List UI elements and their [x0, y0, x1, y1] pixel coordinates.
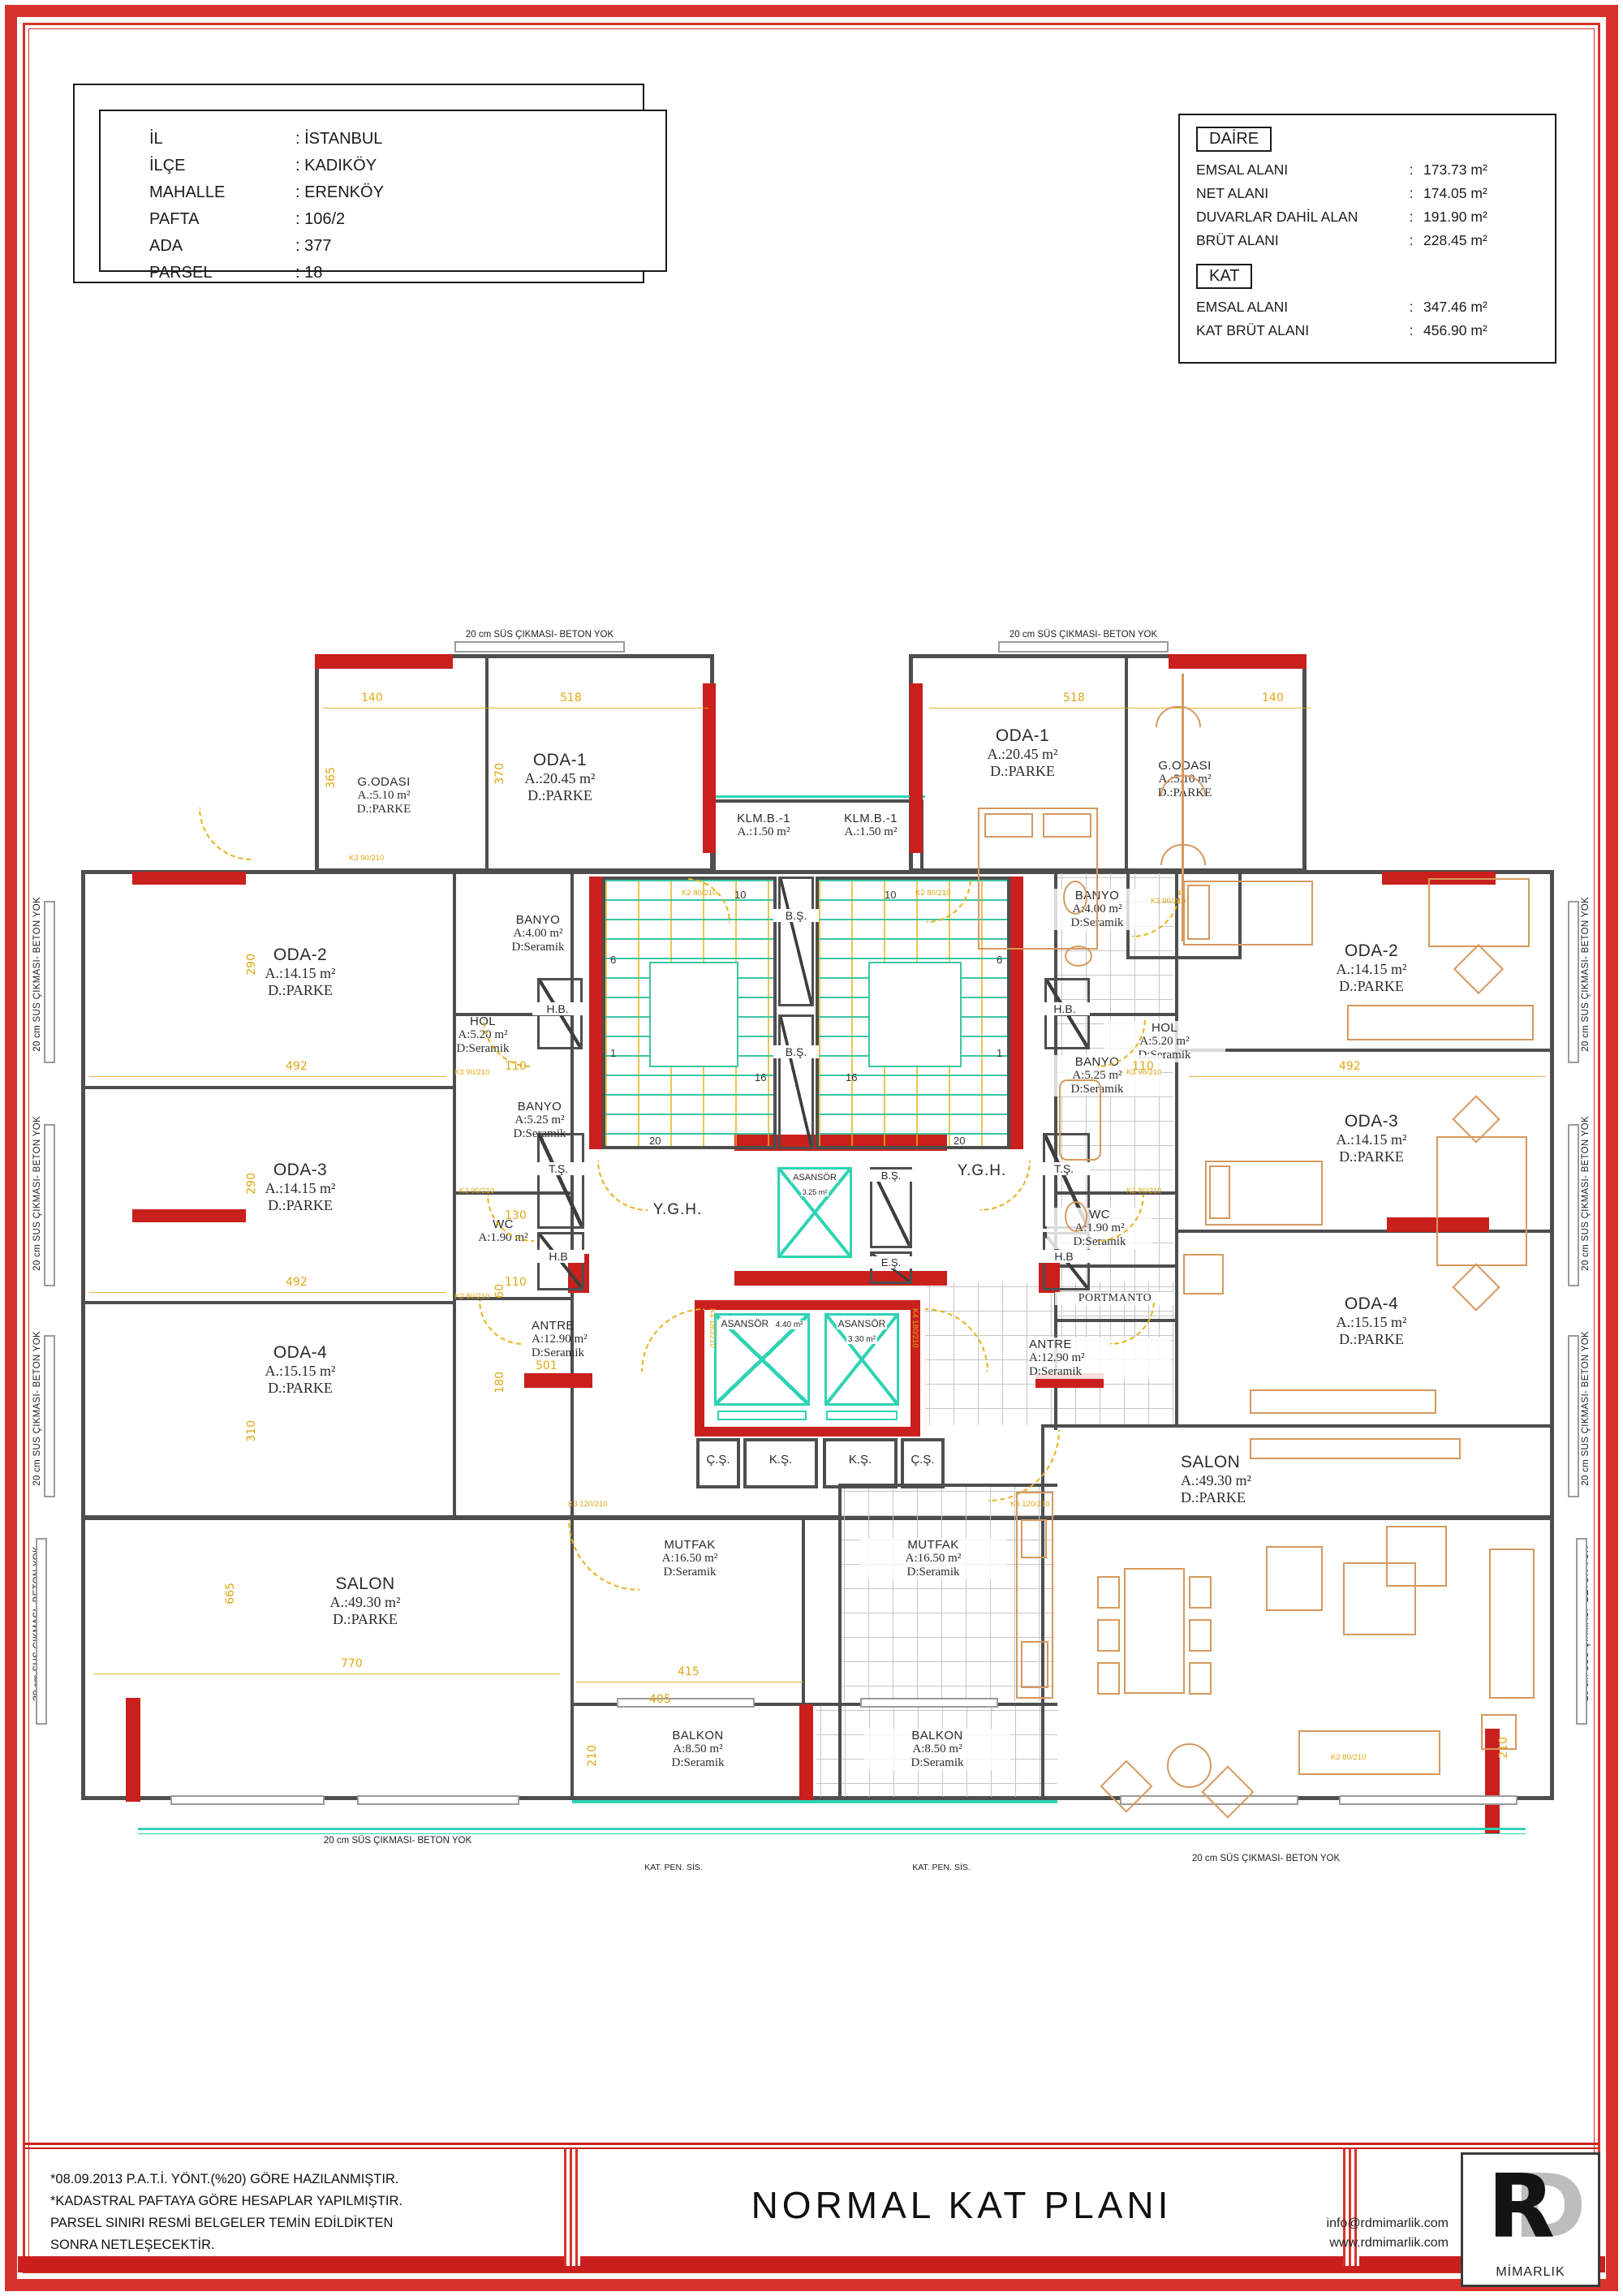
room-label-balkon-right: BALKON A:8.50 m² D:Seramik — [864, 1729, 1010, 1770]
room-name: KLM.B.-1 — [712, 812, 815, 825]
edge-note-top-left: 20 cm SÜS ÇIKMASI- BETON YOK — [450, 630, 629, 640]
wall — [838, 1485, 842, 1800]
room-floor: D:Seramik — [625, 1756, 771, 1770]
room-floor: D:Seramik — [864, 1756, 1010, 1770]
sideboard — [1250, 1438, 1461, 1459]
toilet — [1065, 1201, 1087, 1232]
room-floor: D:Seramik — [1029, 1365, 1171, 1379]
room-label-oda4-right: ODA-4 A.:15.15 m² D.:PARKE — [1258, 1294, 1485, 1348]
window — [998, 641, 1169, 653]
room-area: A.:14.15 m² — [187, 1180, 414, 1197]
company-logo: D R MİMARLIK — [1461, 2152, 1600, 2287]
door-tag: K2 80/210 — [1126, 1187, 1161, 1195]
window — [1568, 1335, 1579, 1497]
window — [44, 1335, 55, 1497]
room-name: ANTRE — [1029, 1338, 1171, 1351]
room-label-klmb-left: KLM.B.-1 A.:1.50 m² — [712, 812, 815, 839]
wall — [1126, 956, 1242, 959]
ts-shaft — [537, 1133, 584, 1229]
elevator-area: 3.25 m² — [801, 1188, 829, 1196]
room-area: A.:20.45 m² — [933, 746, 1112, 763]
room-area: A.:5.10 m² — [323, 789, 445, 803]
room-label-balkon-left: BALKON A:8.50 m² D:Seramik — [625, 1729, 771, 1770]
window — [1568, 1124, 1579, 1286]
room-name: BANYO — [477, 913, 599, 927]
elevator-label: ASANSÖR 4.40 m² — [714, 1316, 810, 1331]
red-wall — [734, 1271, 947, 1286]
coffee-table — [1386, 1526, 1447, 1587]
room-label-mutfak-right: MUTFAK A:16.50 m² D:Seramik — [860, 1538, 1006, 1579]
room-name: ODA-3 — [187, 1161, 414, 1180]
edge-note-bottom-left: 20 cm SÜS ÇIKMASI- BETON YOK — [268, 1836, 527, 1846]
logo-letter-r: R — [1487, 2156, 1555, 2258]
dimension-line — [576, 1682, 803, 1682]
stove — [1021, 1641, 1048, 1688]
dimension: 180 — [493, 1372, 506, 1394]
room-area: A.:49.30 m² — [1181, 1472, 1384, 1489]
edge-note-top-right: 20 cm SÜS ÇIKMASI- BETON YOK — [994, 630, 1173, 640]
room-name: ODA-2 — [187, 946, 414, 965]
dimension: 518 — [560, 691, 582, 704]
room-label-oda2-right: ODA-2 A.:14.15 m² D.:PARKE — [1258, 941, 1485, 995]
window — [1339, 1795, 1518, 1805]
elevator-name: ASANSÖR — [791, 1173, 838, 1182]
kitchen-sink — [1021, 1519, 1047, 1558]
room-name: MUTFAK — [860, 1538, 1006, 1552]
door-tag: K3 120/210 — [568, 1500, 608, 1509]
stair-number: 6 — [610, 954, 616, 966]
elevator-name: ASANSÖR — [719, 1318, 770, 1329]
dimension: 310 — [245, 1420, 258, 1442]
cs-label: Ç.Ş. — [901, 1453, 945, 1467]
ks-label: K.Ş. — [743, 1453, 818, 1467]
room-area: A.:14.15 m² — [187, 965, 414, 982]
room-name: ODA-1 — [933, 726, 1112, 746]
door-arc — [199, 808, 252, 860]
ks-label: K.Ş. — [823, 1453, 898, 1467]
stair-number: 16 — [846, 1071, 857, 1083]
wall — [1175, 1049, 1554, 1052]
room-floor: D.:PARKE — [933, 763, 1112, 780]
chair — [1097, 1662, 1120, 1695]
dimension: 290 — [245, 1173, 258, 1195]
window — [454, 641, 625, 653]
klmb-window-line — [711, 795, 925, 798]
room-label-salon-right: SALON A.:49.30 m² D.:PARKE — [1181, 1453, 1384, 1506]
chair — [1097, 1576, 1120, 1609]
room-name: ODA-4 — [1258, 1294, 1485, 1314]
dimension: 210 — [586, 1745, 599, 1767]
elevator-name: ASANSÖR — [837, 1318, 888, 1329]
window — [617, 1698, 755, 1708]
red-wall — [524, 1373, 592, 1388]
side-table — [1481, 1714, 1517, 1750]
toilet — [1063, 881, 1087, 915]
room-name: BALKON — [864, 1729, 1010, 1742]
window — [44, 1124, 55, 1286]
room-floor: D.:PARKE — [243, 1611, 487, 1628]
window — [44, 901, 55, 1063]
room-area: A.:1.50 m² — [712, 825, 815, 839]
window — [357, 1795, 519, 1805]
elevator-sill — [717, 1411, 807, 1420]
room-area: A:16.50 m² — [860, 1552, 1006, 1566]
bs-label: B.Ş. — [773, 1045, 819, 1058]
room-area: A.:1.50 m² — [818, 825, 923, 839]
room-label-klmb-right: KLM.B.-1 A.:1.50 m² — [818, 812, 923, 839]
dimension-line — [89, 1292, 446, 1293]
room-name: G.ODASI — [323, 775, 445, 789]
stair-number: 6 — [997, 954, 1002, 966]
bs-label: B.Ş. — [773, 909, 819, 922]
pillow — [1187, 885, 1210, 940]
room-name: G.ODASI — [1128, 759, 1242, 773]
red-wall — [132, 872, 246, 885]
round-table — [1167, 1743, 1212, 1788]
chair — [1097, 1619, 1120, 1652]
room-floor: D.:PARKE — [479, 787, 641, 804]
room-label-oda2-left: ODA-2 A.:14.15 m² D.:PARKE — [187, 946, 414, 999]
room-area: A:8.50 m² — [625, 1742, 771, 1756]
elevator-area: 4.40 m² — [774, 1320, 805, 1329]
room-label-antre-right: ANTRE A:12.90 m² D:Seramik — [1029, 1338, 1171, 1379]
dimension-line — [93, 1674, 560, 1674]
stair-landing-right — [868, 962, 962, 1067]
room-label-salon-left: SALON A.:49.30 m² D.:PARKE — [243, 1574, 487, 1628]
room-name: BALKON — [625, 1729, 771, 1742]
pillow — [984, 813, 1033, 838]
room-label-godasi-left: G.ODASI A.:5.10 m² D.:PARKE — [323, 775, 445, 816]
door-tag: K4 180/210 — [708, 1308, 717, 1348]
dimension: 492 — [1339, 1060, 1361, 1073]
dimension-line — [323, 708, 708, 709]
room-name: KLM.B.-1 — [818, 812, 923, 825]
chair — [1189, 1576, 1212, 1609]
room-floor: D.:PARKE — [1258, 1331, 1485, 1348]
dimension: 492 — [286, 1276, 308, 1289]
edge-note-left: 20 cm SÜS ÇIKMASI- BETON YOK — [32, 1331, 42, 1486]
room-label-oda4-left: ODA-4 A.:15.15 m² D.:PARKE — [187, 1343, 414, 1397]
door-tag: K2 80/210 — [682, 889, 717, 898]
wall — [570, 1516, 574, 1800]
door-tag: K2 80/210 — [454, 1292, 489, 1301]
bs-label: B.Ş. — [865, 1170, 917, 1182]
desk — [1436, 1136, 1527, 1266]
stair-number: 10 — [734, 889, 746, 901]
window — [36, 1538, 47, 1725]
ts-label: T.Ş. — [532, 1162, 584, 1175]
dimension: 665 — [224, 1583, 237, 1605]
edge-note-right: 20 cm SÜS ÇIKMASI- BETON YOK — [1581, 897, 1591, 1052]
window — [860, 1698, 998, 1708]
sideboard — [1250, 1389, 1436, 1414]
stair-number: 10 — [885, 889, 896, 901]
chair — [1189, 1619, 1212, 1652]
hb-label: H.B. — [1040, 1002, 1090, 1015]
hb-label: H.B. — [532, 1002, 583, 1015]
armchair — [1266, 1546, 1323, 1611]
room-floor: D.:PARKE — [323, 803, 445, 816]
kat-pen-note: KAT. PEN. SİS. — [617, 1863, 730, 1872]
nightstand — [1183, 1254, 1224, 1294]
kat-pen-note: KAT. PEN. SİS. — [885, 1863, 998, 1872]
wall — [1175, 870, 1178, 1427]
dimension: 770 — [341, 1657, 363, 1670]
wardrobe — [1347, 1005, 1534, 1040]
wall — [81, 1301, 453, 1304]
room-floor: D.:PARKE — [1258, 978, 1485, 995]
sofa — [1298, 1730, 1440, 1775]
room-floor: D.:PARKE — [187, 1197, 414, 1214]
room-floor: D.:PARKE — [187, 1380, 414, 1397]
stair-number: 20 — [649, 1135, 661, 1147]
logo-label: MİMARLIK — [1463, 2265, 1598, 2280]
dimension: 405 — [649, 1693, 671, 1706]
window — [170, 1795, 325, 1805]
floor-plan: 20 cm SÜS ÇIKMASI- BETON YOK 20 cm SÜS Ç… — [0, 0, 1623, 2296]
edge-note-right: 20 cm SÜS ÇIKMASI- BETON YOK — [1581, 1331, 1591, 1486]
edge-note-bottom-right: 20 cm SÜS ÇIKMASI- BETON YOK — [1136, 1854, 1396, 1863]
room-name: ODA-4 — [187, 1343, 414, 1363]
wall — [81, 1086, 453, 1089]
room-label-oda3-left: ODA-3 A.:14.15 m² D.:PARKE — [187, 1161, 414, 1214]
dimension-line — [89, 1076, 446, 1077]
dimension: 140 — [1262, 691, 1284, 704]
stair-number: 16 — [755, 1071, 766, 1083]
edge-note-left: 20 cm SÜS ÇIKMASI- BETON YOK — [32, 1116, 42, 1271]
elevator-label: ASANSÖR 3.30 m² — [824, 1316, 899, 1346]
room-area: A:12.90 m² — [1029, 1351, 1171, 1365]
titleblock-rule — [24, 2147, 1599, 2149]
hb-label: H.B — [532, 1250, 584, 1263]
dimension: 140 — [361, 691, 383, 704]
bathtub — [1059, 1079, 1101, 1161]
red-wall — [315, 654, 453, 669]
dimension: 518 — [1063, 691, 1085, 704]
bs-shaft — [778, 877, 814, 1006]
edge-note-left: 20 cm SÜS ÇIKMASI- BETON YOK — [32, 897, 42, 1052]
door-tag: K3 90/210 — [349, 854, 384, 863]
dining-table — [1124, 1568, 1185, 1694]
room-floor: D:Seramik — [860, 1566, 1006, 1579]
bs-shaft — [778, 1014, 814, 1149]
titleblock-divider — [564, 2149, 580, 2266]
room-name: SALON — [243, 1574, 487, 1594]
room-label-oda1-right: ODA-1 A.:20.45 m² D.:PARKE — [933, 726, 1112, 780]
door-tag: K3 90/210 — [1151, 897, 1186, 906]
dimension: 110 — [505, 1276, 527, 1289]
door-tag: K3 90/210 — [454, 1068, 489, 1077]
desk — [1428, 878, 1530, 947]
door-tag: K3 90/210 — [459, 1187, 494, 1195]
room-floor: D.:PARKE — [1181, 1489, 1384, 1506]
contact-web: www.rdmimarlik.com — [1266, 2234, 1449, 2253]
room-area: A:4.00 m² — [477, 927, 599, 941]
elevator-area: 3.30 m² — [846, 1335, 877, 1344]
contact-email: info@rdmimarlik.com — [1266, 2214, 1449, 2234]
room-name: BANYO — [475, 1100, 605, 1114]
stair-number: 20 — [954, 1135, 965, 1147]
dimension: 290 — [245, 954, 258, 976]
room-floor: D.:PARKE — [187, 982, 414, 999]
facade-line — [138, 1833, 1526, 1834]
dimension: 130 — [505, 1209, 527, 1222]
cs-label: Ç.Ş. — [696, 1453, 740, 1467]
window — [1576, 1538, 1587, 1725]
stair-landing-left — [649, 962, 738, 1067]
dimension-line — [929, 708, 1311, 709]
titleblock-rule — [24, 2143, 1599, 2145]
room-area: A.:15.15 m² — [187, 1363, 414, 1380]
dimension: 492 — [286, 1060, 308, 1073]
pillow — [1209, 1165, 1230, 1219]
room-floor: D:Seramik — [477, 941, 599, 954]
window — [1568, 901, 1579, 1063]
room-area: A:8.50 m² — [864, 1742, 1010, 1756]
room-area: A:5.25 m² — [475, 1114, 605, 1127]
room-name: ODA-3 — [1258, 1112, 1485, 1131]
es-label: E.Ş. — [865, 1256, 917, 1269]
dimension-line — [1189, 1076, 1546, 1077]
door-tag: K4 180/210 — [911, 1308, 919, 1348]
pillow — [1043, 813, 1091, 838]
red-wall — [126, 1698, 140, 1802]
red-wall — [1169, 654, 1307, 669]
room-area: A.:49.30 m² — [243, 1594, 487, 1611]
wall — [1041, 1424, 1554, 1428]
hb-label: H.B — [1038, 1250, 1090, 1263]
stair-number: 1 — [610, 1047, 616, 1059]
dimension: 501 — [536, 1359, 558, 1372]
washbasin — [1065, 946, 1092, 967]
room-floor: D:Seramik — [475, 1127, 605, 1141]
room-area: A.:14.15 m² — [1258, 961, 1485, 978]
sofa — [1489, 1549, 1535, 1699]
plan-sheet: { "punct":{"colon":":"}, "location_box":… — [0, 0, 1623, 2296]
room-label-banyo5-left: BANYO A:5.25 m² D:Seramik — [475, 1100, 605, 1141]
elevator-sill — [826, 1411, 898, 1420]
dimension: 370 — [493, 763, 506, 785]
plan-notes: *08.09.2013 P.A.T.İ. YÖNT.(%20) GÖRE HAZ… — [50, 2169, 558, 2256]
chair — [1189, 1662, 1212, 1695]
edge-note-right: 20 cm SÜS ÇIKMASI- BETON YOK — [1581, 1116, 1591, 1271]
dimension: 60 — [493, 1284, 506, 1299]
dimension: 415 — [678, 1665, 700, 1678]
stair-number: 1 — [997, 1047, 1002, 1059]
room-label-banyo4-left: BANYO A:4.00 m² D:Seramik — [477, 913, 599, 954]
room-area: A.:15.15 m² — [1258, 1314, 1485, 1331]
balcony-rail — [572, 1800, 1057, 1803]
dimension: 110 — [505, 1060, 527, 1073]
dimension: 365 — [325, 767, 338, 789]
red-wall — [799, 1704, 813, 1800]
dimension: 110 — [1132, 1060, 1154, 1073]
contact-info: info@rdmimarlik.com www.rdmimarlik.com — [1266, 2214, 1449, 2253]
door-tag: K2 80/210 — [915, 889, 950, 898]
plan-title: NORMAL KAT PLANI — [584, 2183, 1339, 2227]
elevator-label: ASANSÖR 3.25 m² — [777, 1170, 852, 1199]
facade-line — [138, 1828, 1526, 1830]
room-area: A:1.90 m² — [458, 1231, 548, 1245]
